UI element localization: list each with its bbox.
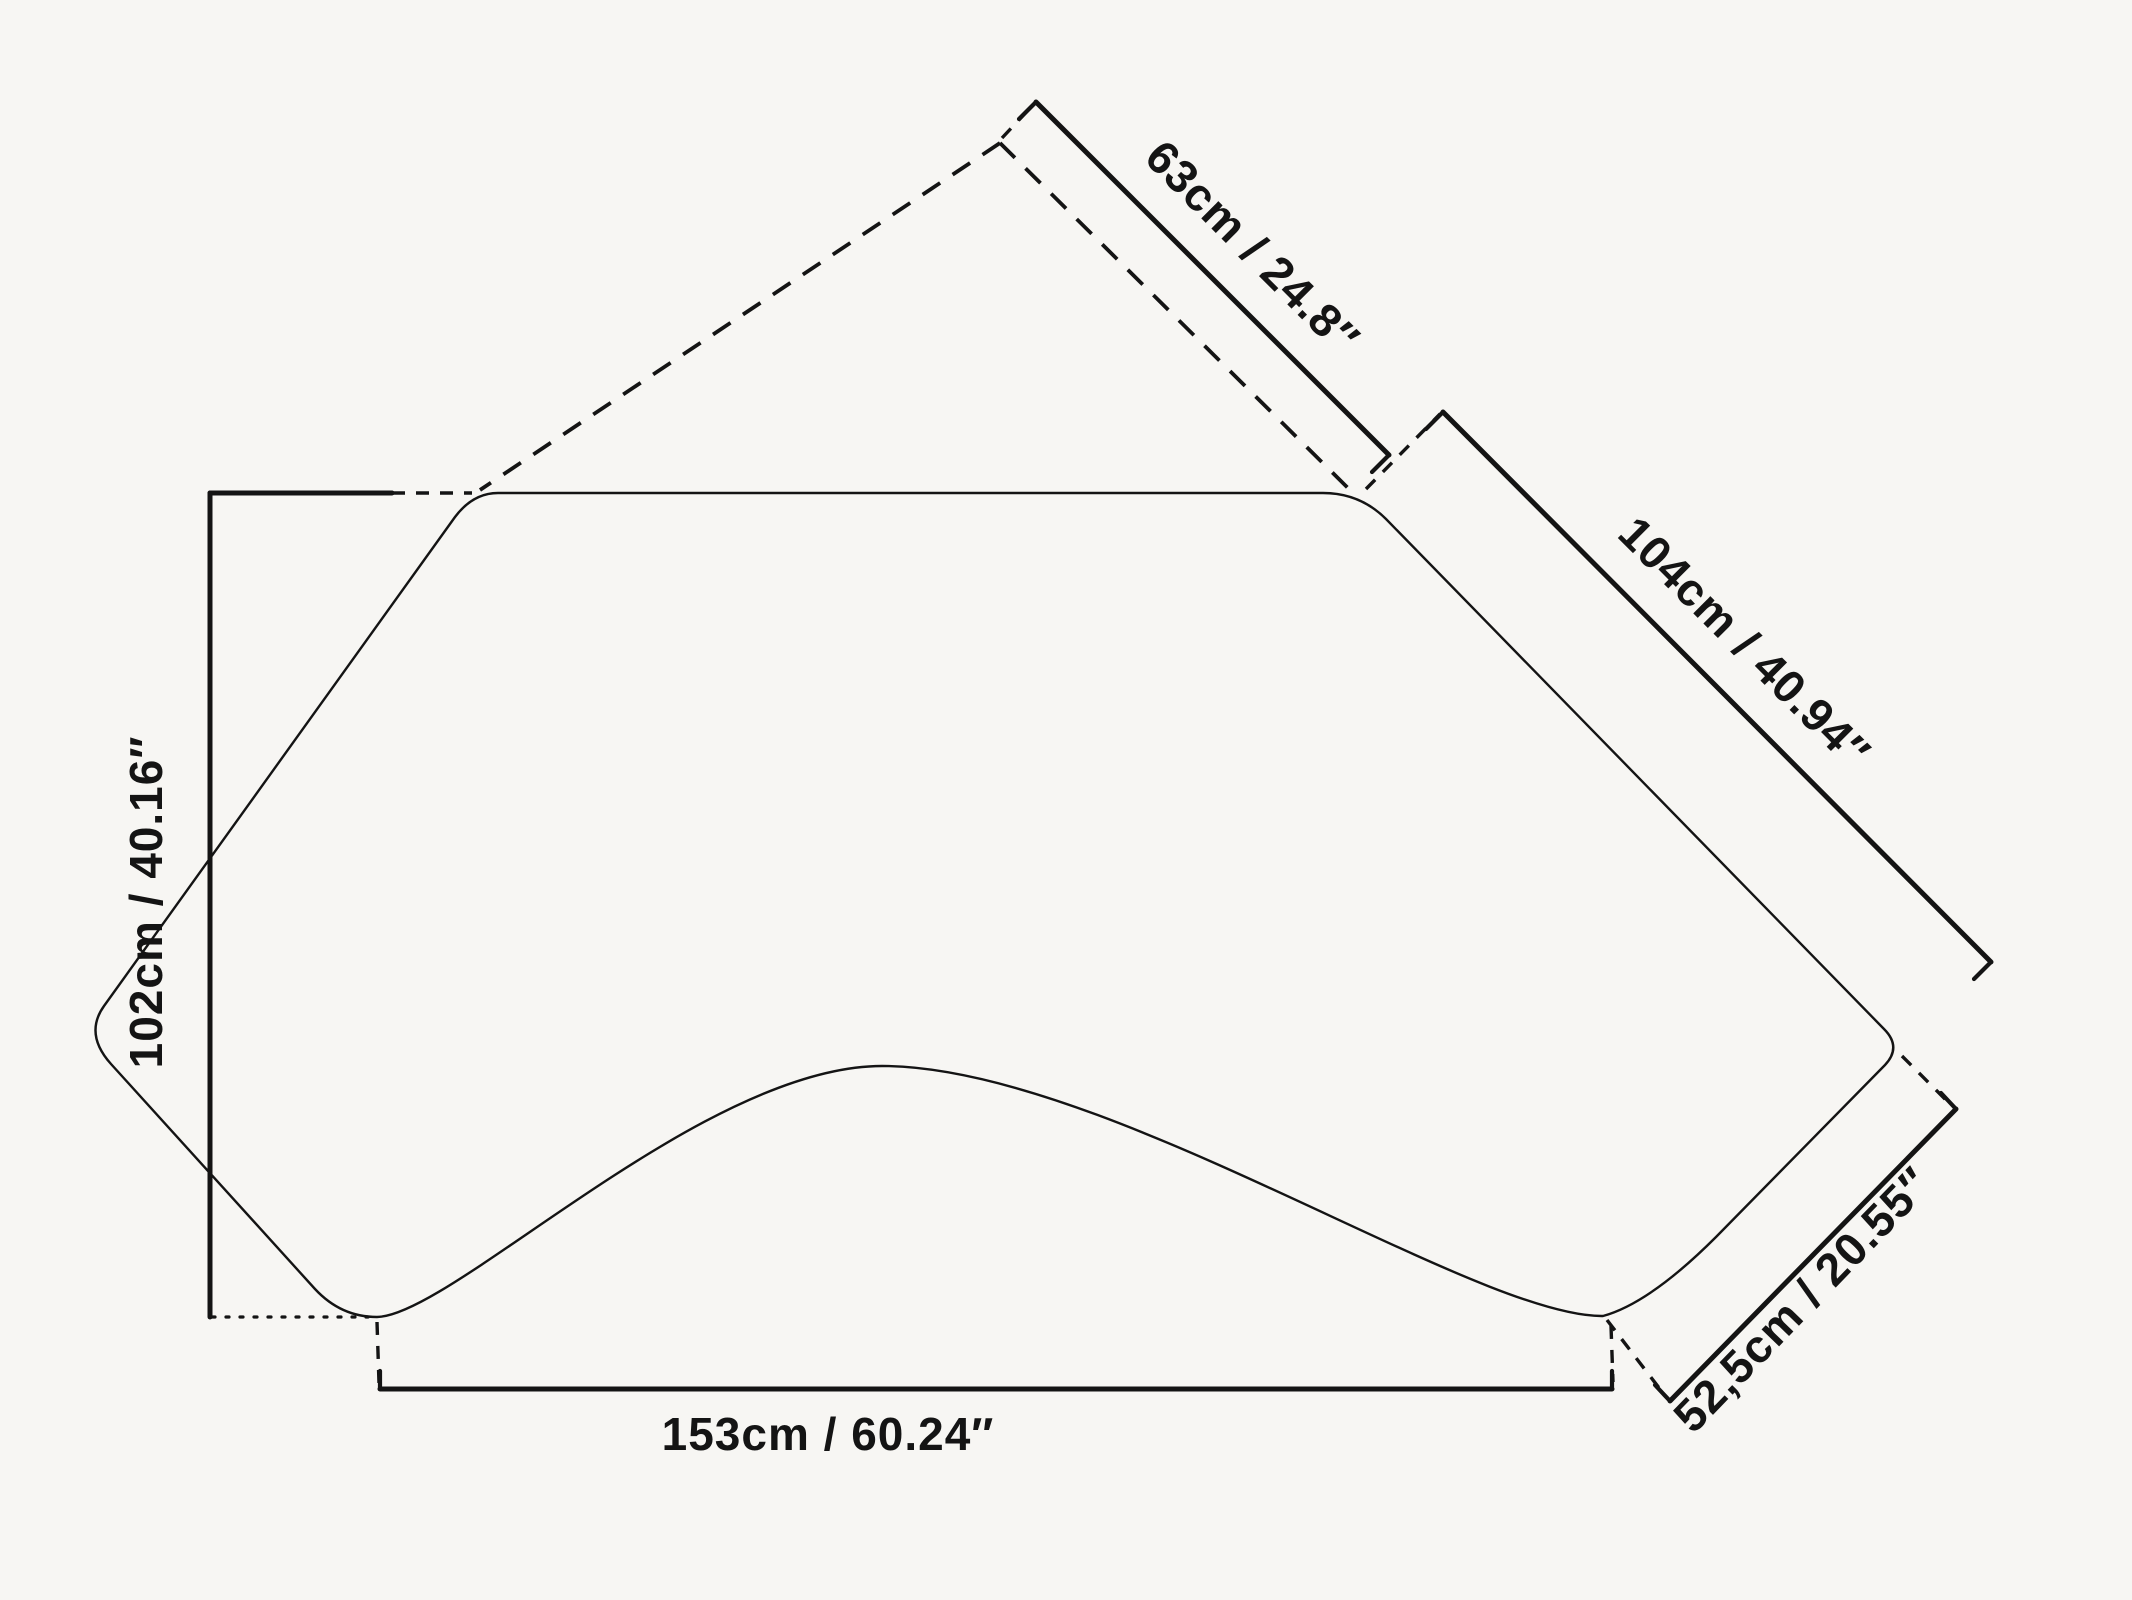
dimension-line-104 xyxy=(1443,412,1991,962)
dimension-63: 63cm / 24.8″ xyxy=(1019,102,1389,472)
dimension-label-side-right: 104cm / 40.94″ xyxy=(1609,506,1881,778)
dimension-102: 102cm / 40.16″ xyxy=(120,493,392,1317)
dimension-line-63 xyxy=(1036,102,1389,455)
desk-outline xyxy=(95,493,1893,1317)
dimension-label-height-left: 102cm / 40.16″ xyxy=(120,736,172,1069)
dimension-diagram: 63cm / 24.8″ 104cm / 40.94″ 102cm / 40.1… xyxy=(0,0,2132,1600)
dimension-label-edge-bottom-right: 52,5cm / 20.55″ xyxy=(1663,1157,1941,1442)
dimension-tick xyxy=(1974,962,1991,979)
dimension-label-back-top: 63cm / 24.8″ xyxy=(1135,130,1369,364)
dimension-tick xyxy=(1019,102,1036,119)
dimension-153: 153cm / 60.24″ xyxy=(380,1371,1612,1460)
dimension-tick xyxy=(1941,1093,1956,1109)
extension-line-apex-left xyxy=(480,143,1000,490)
dimension-label-width-bottom: 153cm / 60.24″ xyxy=(662,1408,995,1460)
dimension-tick xyxy=(1426,412,1443,429)
dimension-104: 104cm / 40.94″ xyxy=(1426,412,1991,979)
dimension-tick xyxy=(1655,1385,1670,1401)
desk-top-plan-svg: 63cm / 24.8″ 104cm / 40.94″ 102cm / 40.1… xyxy=(0,0,2132,1600)
